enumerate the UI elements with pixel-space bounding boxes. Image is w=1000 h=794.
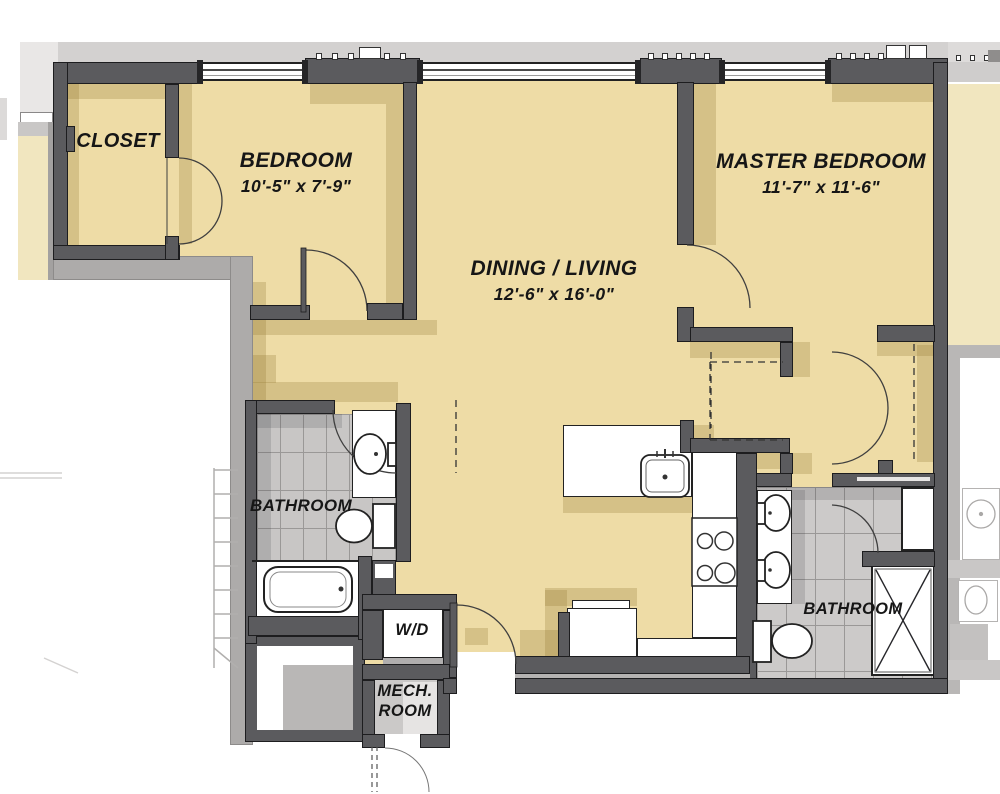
wall (165, 236, 179, 260)
bathroom-left-vanity (352, 410, 396, 498)
mullion-mark (316, 53, 322, 60)
tub-alcove (257, 562, 358, 618)
room-dim-dining-living: 12'-6" x 16'-0" (494, 284, 614, 305)
room-label-mech-line2: ROOM (379, 702, 432, 721)
mullion-cap (988, 50, 1000, 62)
context-sill-right (948, 62, 1000, 82)
adjacent-unit-floor-left (18, 136, 48, 282)
wall (53, 245, 180, 260)
adjacent-wall-right-h (948, 345, 1000, 358)
room-label-bathroom-right: BATHROOM (803, 600, 902, 619)
context-left-sliver (0, 98, 7, 140)
wall (250, 305, 310, 320)
wall (396, 403, 411, 562)
mullion-mark (956, 55, 961, 61)
context-band-top (53, 42, 948, 64)
wall (53, 62, 68, 260)
wall (362, 734, 385, 748)
wall (362, 594, 457, 610)
wall (677, 82, 694, 245)
wall (403, 82, 417, 320)
counter-above-refrigerator (572, 600, 630, 609)
wall (558, 612, 570, 660)
floor-plan: CLOSET BEDROOM 10'-5" x 7'-9" DINING / L… (0, 0, 1000, 794)
window (200, 62, 304, 81)
refrigerator (567, 608, 637, 658)
adjacent-unit-floor-right (948, 84, 1000, 345)
vent (909, 45, 927, 59)
wall (245, 400, 257, 644)
mullion-mark (850, 53, 856, 60)
wall (443, 678, 457, 694)
wall (248, 616, 363, 636)
mullion-mark (384, 53, 390, 60)
wall (515, 656, 750, 674)
wall (780, 342, 793, 377)
mullion-mark (878, 53, 884, 60)
room-dim-master-bedroom: 11'-7" x 11'-6" (762, 177, 880, 198)
wall (690, 327, 793, 342)
window-cap (635, 60, 641, 84)
vent (359, 47, 381, 59)
wall (362, 664, 450, 680)
wall (736, 453, 757, 680)
mullion-mark (836, 53, 842, 60)
counter-ledge (857, 477, 930, 481)
stairwell-void (0, 280, 242, 794)
kitchen-counter-bottom (637, 638, 737, 658)
shaft-gray-patch (283, 665, 353, 730)
adjacent-counter (962, 488, 1000, 560)
bathroom-right-vanity (757, 490, 792, 604)
vent (886, 45, 906, 59)
room-label-master-bedroom: MASTER BEDROOM (716, 150, 926, 174)
wall (367, 303, 403, 320)
wall (245, 400, 335, 414)
adjacent-band (948, 660, 1000, 680)
wall-bottom-exterior (515, 678, 948, 694)
mullion-mark (676, 53, 682, 60)
entry-opening (457, 652, 515, 696)
shower (871, 565, 935, 676)
window-cap (417, 60, 423, 84)
mullion-mark (864, 53, 870, 60)
room-label-wd: W/D (395, 621, 428, 640)
mullion-mark (400, 53, 406, 60)
mullion-mark (690, 53, 696, 60)
room-label-bathroom-left: BATHROOM (250, 496, 352, 516)
mullion-mark (332, 53, 338, 60)
wall (66, 126, 75, 152)
room-label-closet: CLOSET (76, 130, 160, 153)
window-cap (719, 60, 725, 84)
window-header (640, 58, 722, 84)
context-left-band (18, 122, 48, 136)
window (722, 62, 828, 81)
linen-closet (901, 487, 935, 551)
window-header (305, 58, 420, 84)
wall (53, 62, 200, 84)
adjacent-band (948, 560, 1000, 578)
mullion-mark (704, 53, 710, 60)
window (420, 62, 637, 81)
wall (165, 84, 179, 158)
room-label-dining-living: DINING / LIVING (470, 257, 637, 281)
room-dim-bedroom: 10'-5" x 7'-9" (241, 176, 351, 197)
room-label-mech-line1: MECH. (377, 682, 432, 701)
kitchen-island (563, 425, 692, 497)
wall (362, 610, 383, 660)
wall (420, 734, 450, 748)
adjacent-fixture (950, 624, 988, 660)
wall (690, 438, 790, 453)
mech-door-swing (372, 746, 429, 792)
window-header (828, 58, 948, 84)
window-cap (197, 60, 203, 84)
wall (877, 325, 935, 342)
window-cap (302, 60, 308, 84)
mullion-mark (970, 55, 975, 61)
adjacent-fixture (958, 580, 998, 622)
mullion-mark (648, 53, 654, 60)
window-cap (825, 60, 831, 84)
room-label-bedroom: BEDROOM (240, 149, 352, 173)
wall-right-exterior (933, 62, 948, 694)
mullion-mark (348, 53, 354, 60)
kitchen-counter-right (692, 450, 737, 638)
mullion-mark (662, 53, 668, 60)
wall (862, 551, 935, 567)
wall (780, 453, 793, 474)
bath-linen-inner (375, 564, 393, 578)
